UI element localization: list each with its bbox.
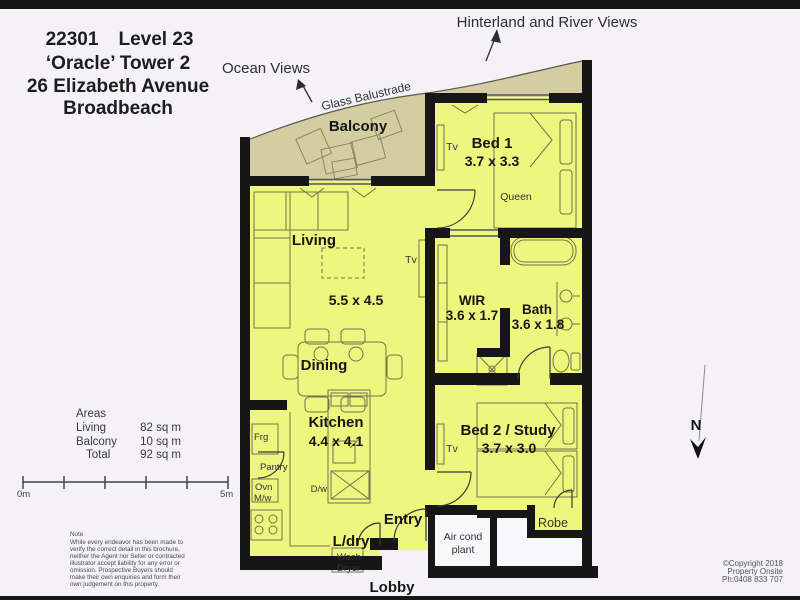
dryer-label: Dryer <box>337 563 360 574</box>
note-title: Note <box>70 531 84 538</box>
tv-label-bed2: Tv <box>446 443 458 455</box>
tv-label-living: Tv <box>405 254 417 266</box>
areas-balcony-label: Balcony <box>76 436 117 448</box>
wir-dims: 3.6 x 1.7 <box>446 308 499 323</box>
scale-start-label: 0m <box>17 489 30 500</box>
aircond-label-2: plant <box>452 544 475 556</box>
kitchen-dims: 4.4 x 4.1 <box>309 433 364 449</box>
bed1-dims: 3.7 x 3.3 <box>465 153 520 169</box>
dishwasher-label: D/w <box>311 484 328 495</box>
bath-label: Bath <box>522 302 552 317</box>
ocean-views-label: Ocean Views <box>222 60 310 77</box>
street-address: 26 Elizabeth Avenue <box>27 76 209 97</box>
fridge-label: Frg <box>254 432 268 443</box>
copyright-block: ©Copyright 2018 Property Onsite Ph:0408 … <box>722 559 784 584</box>
areas-balcony-value: 10 sq m <box>140 436 181 448</box>
disclaimer-note: Note While every endeavor has been made … <box>70 531 185 588</box>
laundry-label: L/dry <box>333 533 370 550</box>
note-line-7: own judgement on this property. <box>70 581 159 588</box>
kitchen-label: Kitchen <box>308 414 363 431</box>
areas-living-label: Living <box>76 422 106 434</box>
oven-label: Ovn <box>255 482 272 493</box>
robe-label: Robe <box>538 516 568 530</box>
pantry-label: Pantry <box>260 462 288 473</box>
washer-label: Wash <box>337 552 361 563</box>
bed1-label: Bed 1 <box>472 135 513 152</box>
copyright-line-3: Ph:0408 833 707 <box>722 575 783 584</box>
balcony-label: Balcony <box>329 118 388 135</box>
note-line-2: verify the correct detail in this brochu… <box>70 546 180 553</box>
hinterland-views-label: Hinterland and River Views <box>457 14 638 31</box>
lobby-label: Lobby <box>370 579 416 596</box>
north-label: N <box>691 417 702 434</box>
areas-total-value: 92 sq m <box>140 449 181 461</box>
top-border-bar <box>0 0 800 9</box>
note-line-5: omission. Prospective Buyers should <box>70 567 173 574</box>
areas-living-value: 82 sq m <box>140 422 181 434</box>
suburb-name: Broadbeach <box>63 98 173 119</box>
bed2-label: Bed 2 / Study <box>460 422 556 439</box>
floor-plan-svg: N 0m 5m 22301 Level 23 ‘Oracle’ Tower 2 … <box>0 0 800 600</box>
lobby-notch <box>380 550 435 582</box>
note-line-6: make their own enquiries and form their <box>70 574 181 581</box>
living-label: Living <box>292 232 336 249</box>
microwave-label: M/w <box>254 493 272 504</box>
aircond-label-1: Air cond <box>444 531 483 543</box>
bottom-border-bar <box>0 596 800 600</box>
unit-number: 22301 <box>46 29 99 50</box>
living-dims: 5.5 x 4.5 <box>329 292 384 308</box>
tv-label-bed1: Tv <box>446 141 458 153</box>
bed2-dims: 3.7 x 3.0 <box>482 440 537 456</box>
building-name: ‘Oracle’ Tower 2 <box>46 53 190 74</box>
wir-label: WIR <box>459 293 485 308</box>
entry-label: Entry <box>384 511 423 528</box>
scale-end-label: 5m <box>220 489 233 500</box>
dining-label: Dining <box>301 357 348 374</box>
note-line-3: neither the Agent nor Seller or contract… <box>70 553 185 560</box>
queen-bed-label: Queen <box>500 191 532 203</box>
note-line-1: While every endeavor has been made to <box>70 539 184 546</box>
floor-plan-page: N 0m 5m 22301 Level 23 ‘Oracle’ Tower 2 … <box>0 0 800 600</box>
level-label: Level 23 <box>119 29 194 50</box>
areas-total-label: Total <box>86 449 110 461</box>
bath-dims: 3.6 x 1.8 <box>512 317 565 332</box>
note-line-4: illustrator accept liability for any err… <box>70 560 180 567</box>
areas-title: Areas <box>76 408 106 420</box>
